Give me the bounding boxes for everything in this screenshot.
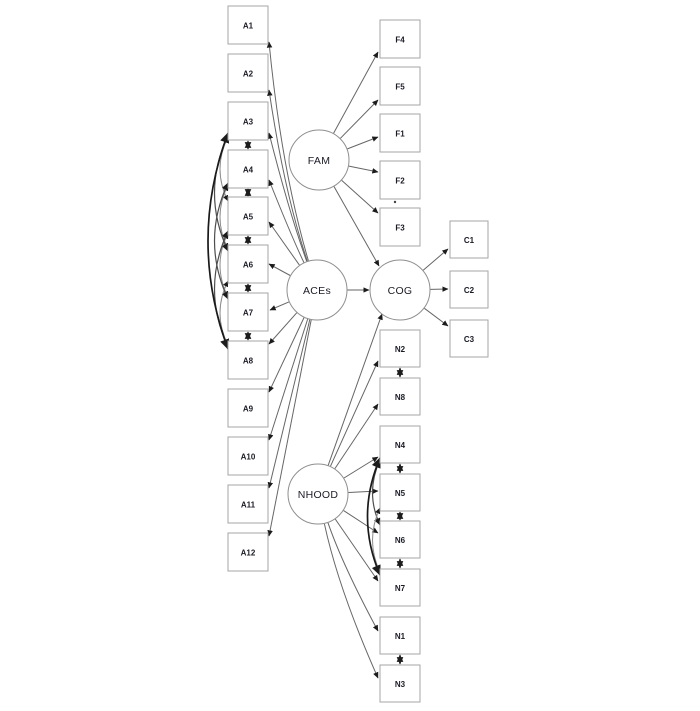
node-A6-box — [228, 245, 268, 283]
node-COG-circle — [370, 260, 430, 320]
node-A11-box — [228, 485, 268, 523]
node-A3-box — [228, 102, 268, 140]
node-F4-box — [380, 20, 420, 58]
node-A7: A7 — [228, 293, 268, 331]
node-F1: F1 — [380, 114, 420, 152]
node-N4: N4 — [380, 426, 420, 463]
node-FAM: FAM — [289, 130, 349, 190]
node-ACEs-circle — [287, 260, 347, 320]
node-COG: COG — [370, 260, 430, 320]
node-F2: F2 — [380, 161, 420, 199]
node-NHOOD-circle — [288, 464, 348, 524]
node-C2-box — [450, 271, 488, 308]
node-F3: F3 — [380, 208, 420, 246]
node-A1-box — [228, 6, 268, 44]
background — [0, 0, 700, 711]
node-N6-box — [380, 521, 420, 558]
node-ACEs: ACEs — [287, 260, 347, 320]
node-N5: N5 — [380, 474, 420, 511]
node-C3-box — [450, 320, 488, 357]
node-A1: A1 — [228, 6, 268, 44]
node-A5: A5 — [228, 197, 268, 235]
diagram-canvas: A1A2A3A4A5A6A7A8A9A10A11A12F4F5F1F2F3C1C… — [0, 0, 700, 711]
node-A10: A10 — [228, 437, 268, 475]
node-F1-box — [380, 114, 420, 152]
node-N7: N7 — [380, 569, 420, 606]
node-A9-box — [228, 389, 268, 427]
node-C3: C3 — [450, 320, 488, 357]
node-A9: A9 — [228, 389, 268, 427]
node-N2-box — [380, 330, 420, 367]
node-F3-box — [380, 208, 420, 246]
node-A12: A12 — [228, 533, 268, 571]
sem-path-diagram: A1A2A3A4A5A6A7A8A9A10A11A12F4F5F1F2F3C1C… — [0, 0, 700, 711]
node-N1-box — [380, 617, 420, 654]
stray-dot — [394, 201, 396, 203]
node-A12-box — [228, 533, 268, 571]
node-N6: N6 — [380, 521, 420, 558]
node-A6: A6 — [228, 245, 268, 283]
node-N4-box — [380, 426, 420, 463]
node-A4: A4 — [228, 150, 268, 188]
node-C1-box — [450, 221, 488, 258]
node-A4-box — [228, 150, 268, 188]
node-F5-box — [380, 67, 420, 105]
node-N8-box — [380, 378, 420, 415]
node-A7-box — [228, 293, 268, 331]
node-A3: A3 — [228, 102, 268, 140]
node-A8-box — [228, 341, 268, 379]
node-FAM-circle — [289, 130, 349, 190]
node-N7-box — [380, 569, 420, 606]
node-N5-box — [380, 474, 420, 511]
node-A10-box — [228, 437, 268, 475]
node-F4: F4 — [380, 20, 420, 58]
node-F5: F5 — [380, 67, 420, 105]
node-N3: N3 — [380, 665, 420, 702]
node-A2: A2 — [228, 54, 268, 92]
node-N8: N8 — [380, 378, 420, 415]
node-A8: A8 — [228, 341, 268, 379]
node-N2: N2 — [380, 330, 420, 367]
node-C2: C2 — [450, 271, 488, 308]
node-A11: A11 — [228, 485, 268, 523]
node-NHOOD: NHOOD — [288, 464, 348, 524]
node-A2-box — [228, 54, 268, 92]
node-C1: C1 — [450, 221, 488, 258]
node-A5-box — [228, 197, 268, 235]
node-F2-box — [380, 161, 420, 199]
node-N3-box — [380, 665, 420, 702]
node-N1: N1 — [380, 617, 420, 654]
